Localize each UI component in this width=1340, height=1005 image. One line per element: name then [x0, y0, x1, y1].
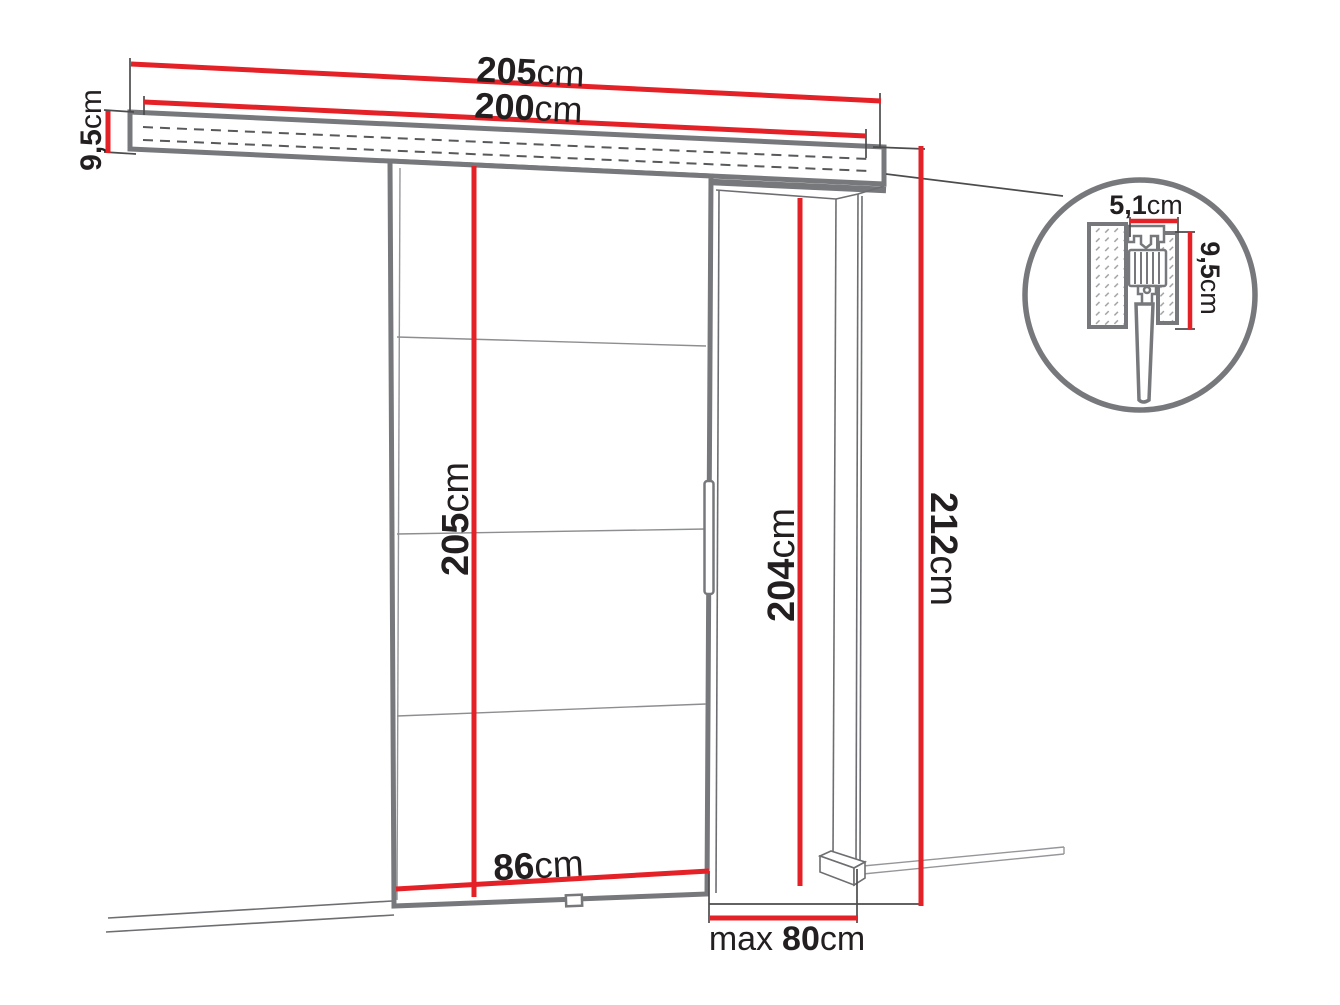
- label-opening-max-width: max80cm: [709, 920, 865, 958]
- floor-skirting-right: [863, 847, 1064, 874]
- label-detail-track-height: 9,5cm: [1195, 241, 1225, 315]
- frame-top-face: [836, 194, 858, 199]
- label-detail-track-width: 5,1cm: [1109, 190, 1183, 220]
- label-opening-height: 204cm: [761, 508, 803, 622]
- skirting-line: [106, 915, 394, 932]
- floor-line: [108, 901, 392, 918]
- diagram-canvas: 205cm 200cm 9,5cm 205cm 204cm 212cm 86cm…: [0, 0, 1340, 1005]
- label-system-height: 212cm: [922, 492, 964, 606]
- detail-leader-line: [886, 174, 1063, 196]
- label-track-height: 9,5cm: [75, 89, 108, 171]
- floor-skirting-left: [106, 901, 394, 932]
- frame-inner-top: [716, 190, 836, 199]
- floor-guide: [566, 895, 582, 907]
- frame-right-jamb-inner: [833, 199, 836, 856]
- sliding-door-diagram: 205cm 200cm 9,5cm 205cm 204cm 212cm 86cm…: [0, 0, 1340, 1005]
- frame-left-jamb: [716, 191, 719, 893]
- label-door-width: 86cm: [492, 843, 585, 889]
- door-handle: [705, 481, 714, 594]
- frame-right-jamb-outer: [860, 196, 862, 864]
- wall-section-left: [1089, 224, 1126, 327]
- threshold: [820, 851, 865, 885]
- door-panel-section: [1136, 304, 1153, 402]
- label-door-height: 205cm: [435, 462, 477, 576]
- carriage-bolt-icon: [1144, 287, 1150, 293]
- frame-right-jamb-front: [856, 194, 858, 861]
- label-track-length: 200cm: [474, 85, 584, 131]
